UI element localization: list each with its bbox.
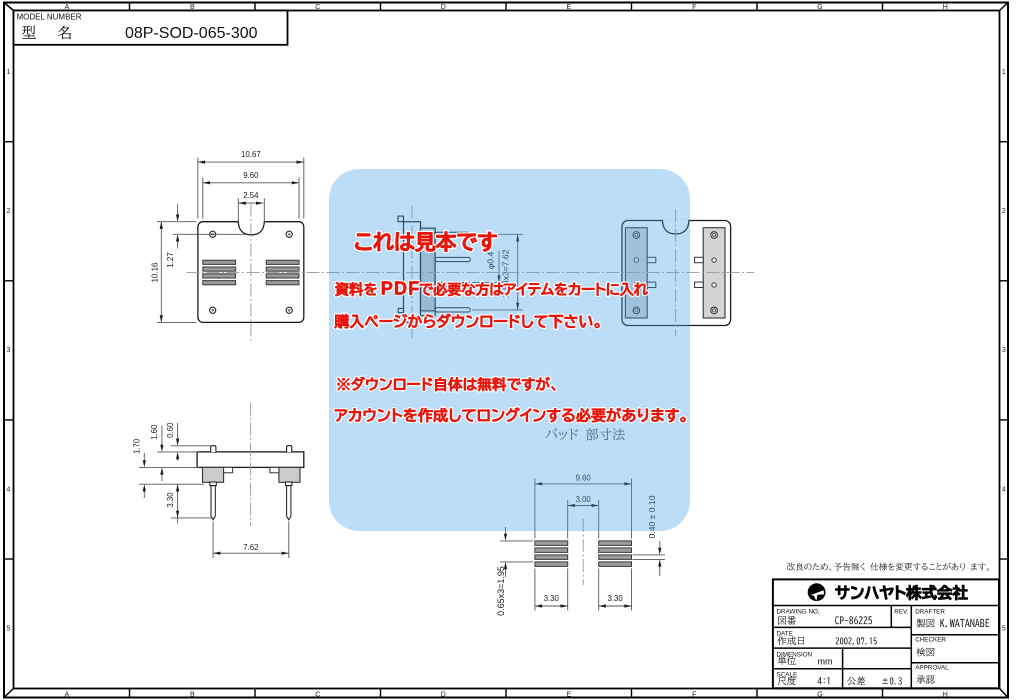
svg-text:1: 1 bbox=[1002, 69, 1006, 76]
svg-text:5: 5 bbox=[1002, 625, 1006, 632]
svg-text:1.60: 1.60 bbox=[150, 424, 159, 440]
svg-text:MODEL NUMBER: MODEL NUMBER bbox=[17, 13, 82, 22]
svg-text:REV.: REV. bbox=[894, 609, 908, 616]
svg-text:08P-SOD-065-300: 08P-SOD-065-300 bbox=[125, 25, 258, 42]
svg-text:0.60: 0.60 bbox=[166, 422, 175, 438]
svg-text:F: F bbox=[692, 692, 696, 699]
svg-text:APPROVAL: APPROVAL bbox=[915, 665, 949, 672]
svg-text:5: 5 bbox=[7, 625, 11, 632]
svg-text:2: 2 bbox=[7, 208, 11, 215]
svg-text:4: 4 bbox=[7, 486, 11, 493]
svg-text:E: E bbox=[566, 4, 571, 11]
svg-text:10.16: 10.16 bbox=[151, 262, 160, 283]
svg-text:1.70: 1.70 bbox=[133, 438, 142, 454]
svg-text:9.60: 9.60 bbox=[243, 171, 259, 180]
svg-text:0.65x3=1.95: 0.65x3=1.95 bbox=[496, 566, 506, 616]
svg-text:D: D bbox=[441, 4, 446, 11]
svg-text:DRAFTER: DRAFTER bbox=[915, 609, 945, 616]
svg-text:C: C bbox=[315, 4, 320, 11]
svg-text:3.30: 3.30 bbox=[608, 594, 624, 603]
svg-text:DRAWING NO.: DRAWING NO. bbox=[777, 609, 820, 616]
svg-text:C: C bbox=[315, 692, 320, 699]
svg-text:3.30: 3.30 bbox=[166, 492, 175, 508]
svg-text:A: A bbox=[64, 692, 69, 699]
svg-text:4: 4 bbox=[1002, 486, 1006, 493]
svg-text:7.62: 7.62 bbox=[243, 543, 258, 552]
svg-text:2: 2 bbox=[1002, 208, 1006, 215]
svg-text:3: 3 bbox=[7, 347, 11, 354]
svg-text:DATE: DATE bbox=[777, 631, 793, 638]
svg-text:H: H bbox=[943, 692, 948, 699]
svg-text:10.67: 10.67 bbox=[241, 150, 261, 159]
svg-text:E: E bbox=[566, 692, 571, 699]
svg-text:3.30: 3.30 bbox=[544, 594, 560, 603]
svg-text:H: H bbox=[943, 4, 948, 11]
svg-text:CHECKER: CHECKER bbox=[915, 637, 946, 644]
svg-text:PDF: PDF bbox=[381, 279, 421, 299]
svg-text:G: G bbox=[817, 4, 822, 11]
svg-text:mm: mm bbox=[818, 656, 833, 666]
svg-text:D: D bbox=[441, 692, 446, 699]
svg-text:1: 1 bbox=[7, 69, 11, 76]
svg-text:B: B bbox=[190, 692, 195, 699]
svg-text:1.27: 1.27 bbox=[166, 252, 175, 268]
svg-text:3: 3 bbox=[1002, 347, 1006, 354]
svg-text:2.54: 2.54 bbox=[243, 191, 259, 200]
svg-text:F: F bbox=[692, 4, 696, 11]
svg-text:G: G bbox=[817, 692, 822, 699]
